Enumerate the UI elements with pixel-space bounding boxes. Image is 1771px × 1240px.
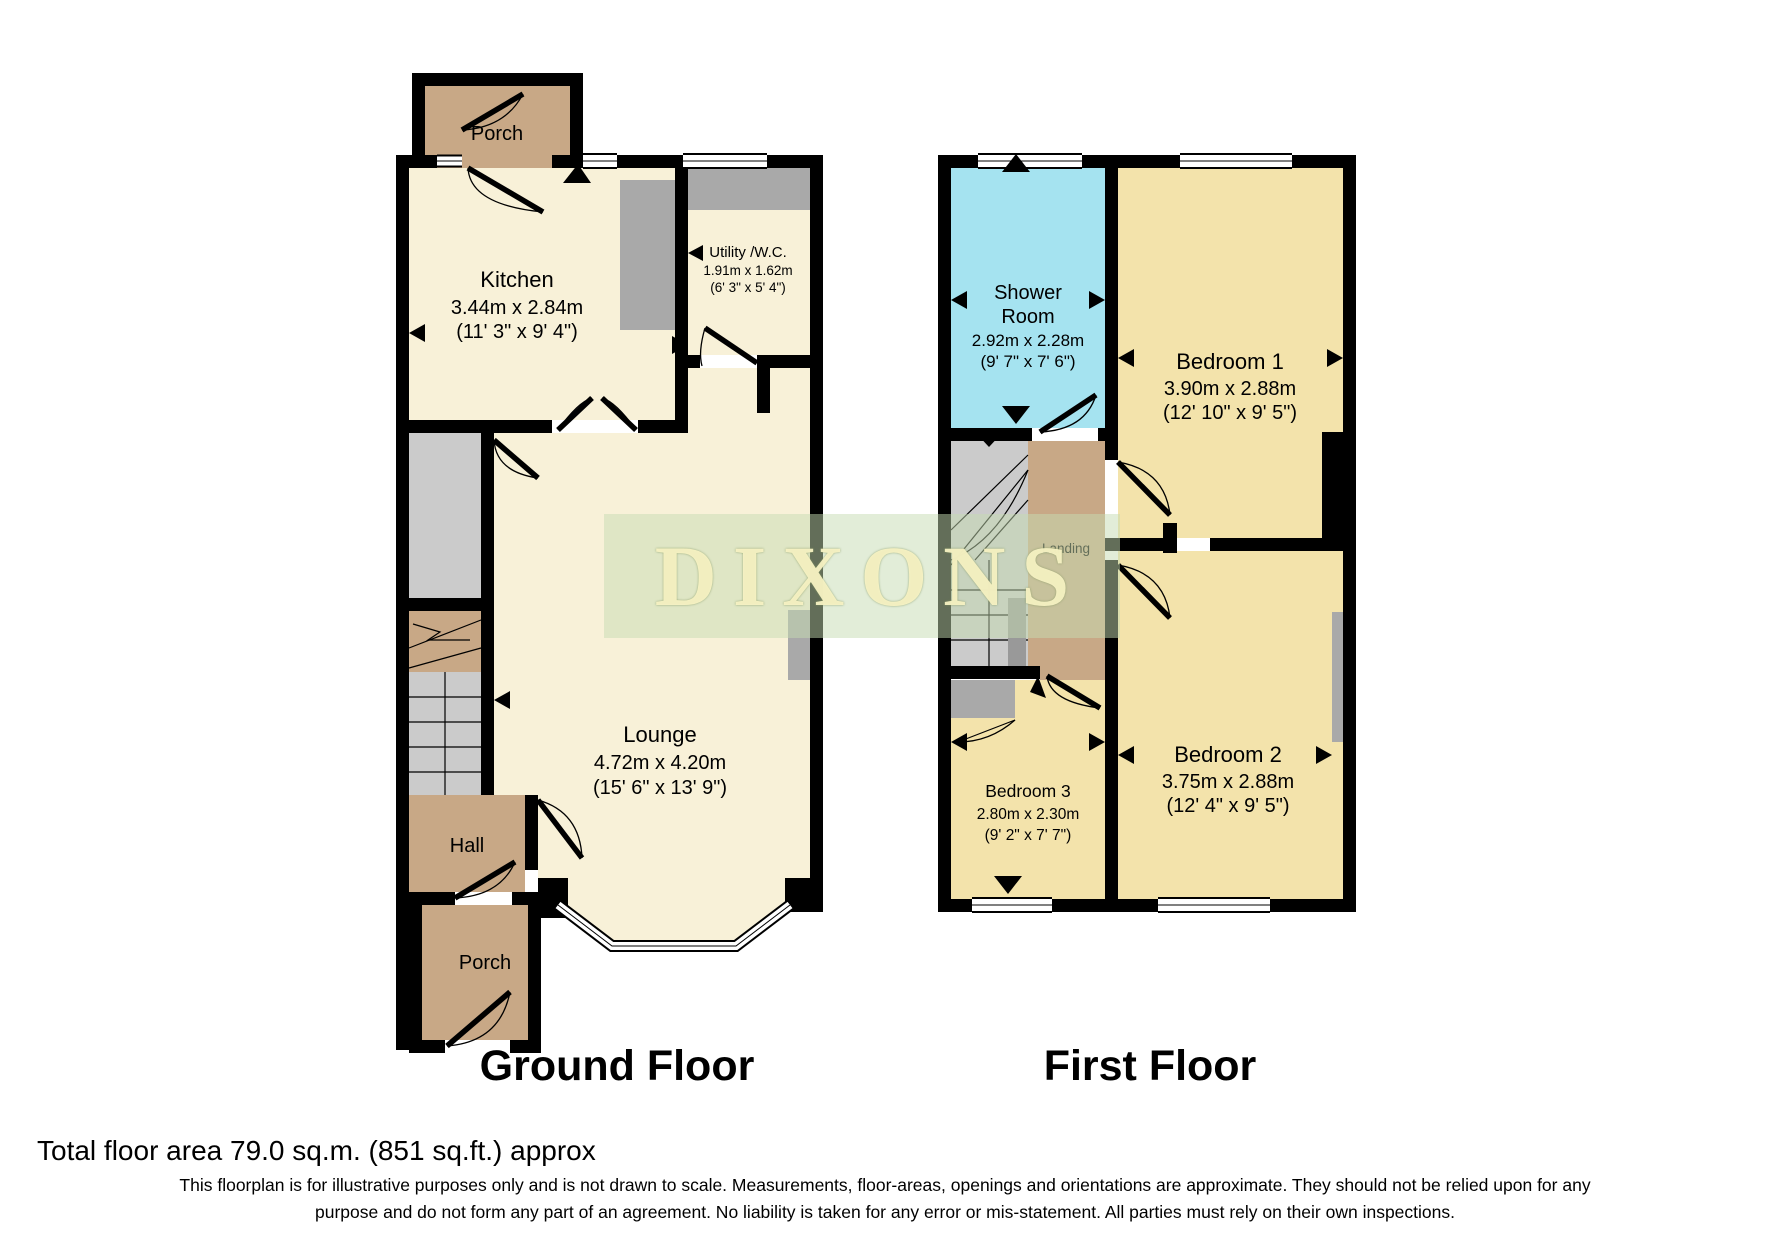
stairs-landing-ground (409, 611, 481, 672)
bedroom2-metric: 3.75m x 2.88m (1162, 771, 1294, 793)
lounge-imperial: (15' 6" x 13' 9") (593, 777, 727, 799)
landing-label: Landing (1042, 541, 1090, 556)
kitchen-imperial: (11' 3" x 9' 4") (456, 321, 578, 343)
ground-floor-plan: Porch Kitchen 3.44m x 2.84m (11' 3" x 9'… (396, 73, 823, 1053)
floorplan-page: Porch Kitchen 3.44m x 2.84m (11' 3" x 9'… (0, 0, 1771, 1240)
utility-imperial: (6' 3" x 5' 4") (710, 280, 786, 295)
bedroom3-metric: 2.80m x 2.30m (977, 806, 1080, 823)
shower-label-2: Room (1001, 306, 1054, 328)
bedroom3-imperial: (9' 2" x 7' 7") (985, 827, 1072, 844)
room-lounge (494, 368, 810, 946)
floorplan-drawing: Porch Kitchen 3.44m x 2.84m (11' 3" x 9'… (0, 0, 1771, 1240)
bedroom1-metric: 3.90m x 2.88m (1164, 378, 1296, 400)
hall-label: Hall (450, 835, 484, 857)
kitchen-counter (620, 180, 675, 330)
first-floor-title: First Floor (1044, 1042, 1257, 1090)
disclaimer-line-2: purpose and do not form any part of an a… (315, 1202, 1455, 1222)
utility-worktop (688, 168, 810, 210)
bedroom2-imperial: (12' 4" x 9' 5") (1167, 795, 1290, 817)
shower-imperial: (9' 7" x 7' 6") (980, 352, 1075, 371)
utility-metric: 1.91m x 1.62m (703, 263, 792, 278)
total-floor-area: Total floor area 79.0 sq.m. (851 sq.ft.)… (37, 1135, 596, 1166)
porch-top-label: Porch (471, 123, 523, 145)
lounge-metric: 4.72m x 4.20m (594, 752, 726, 774)
bedroom1-chimney (1322, 432, 1356, 542)
side-store (409, 433, 481, 598)
first-floor-plan: Shower Room 2.92m x 2.28m (9' 7" x 7' 6"… (938, 154, 1356, 912)
disclaimer-line-1: This floorplan is for illustrative purpo… (179, 1175, 1590, 1195)
shower-label-1: Shower (994, 282, 1062, 304)
bedroom3-label: Bedroom 3 (985, 781, 1071, 801)
bedroom1-imperial: (12' 10" x 9' 5") (1163, 402, 1297, 424)
kitchen-metric: 3.44m x 2.84m (451, 297, 583, 319)
utility-label: Utility /W.C. (709, 244, 787, 261)
shower-metric: 2.92m x 2.28m (972, 331, 1084, 350)
bedroom1-label: Bedroom 1 (1176, 349, 1284, 374)
porch-bottom-label: Porch (459, 952, 511, 974)
lounge-chimney (788, 610, 810, 680)
ground-floor-title: Ground Floor (480, 1042, 755, 1090)
kitchen-label: Kitchen (480, 267, 553, 292)
lounge-label: Lounge (623, 722, 696, 747)
bedroom3-cupboard (951, 680, 1015, 718)
bedroom2-label: Bedroom 2 (1174, 742, 1282, 767)
